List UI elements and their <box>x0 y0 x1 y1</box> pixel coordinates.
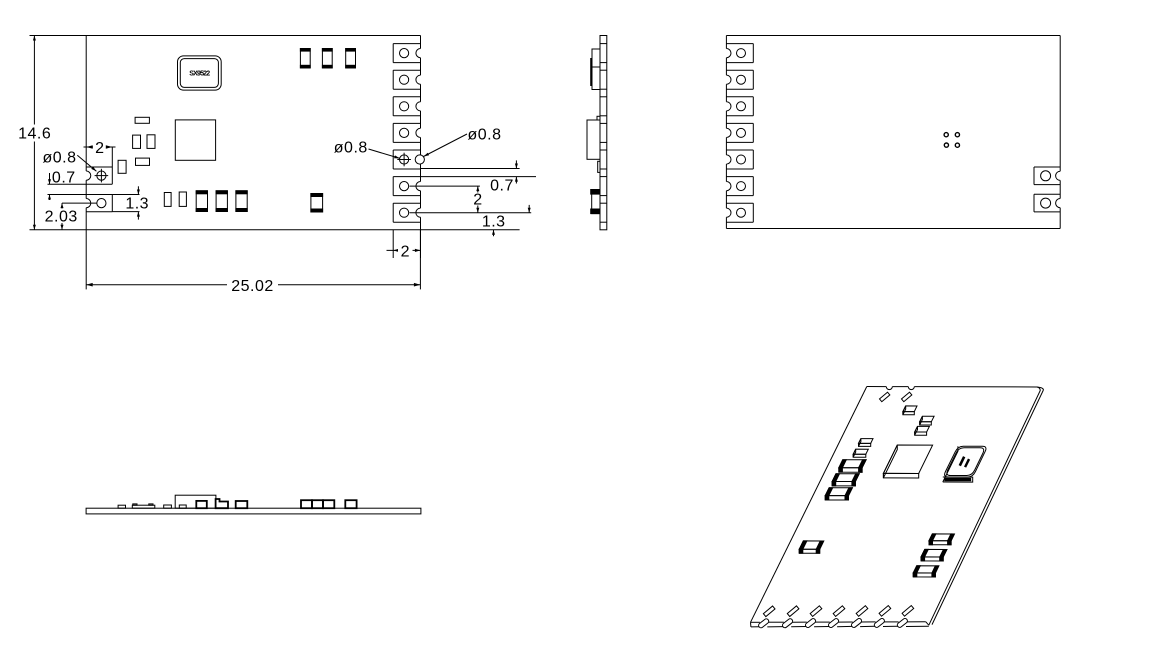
svg-text:1.3: 1.3 <box>125 195 149 212</box>
svg-text:ø0.8: ø0.8 <box>467 127 501 144</box>
svg-text:25.02: 25.02 <box>231 278 274 295</box>
svg-text:14.6: 14.6 <box>18 126 51 143</box>
svg-text:1.3: 1.3 <box>482 214 506 231</box>
svg-text:SX9522: SX9522 <box>189 70 210 77</box>
svg-text:0.7: 0.7 <box>490 178 514 195</box>
svg-text:2: 2 <box>95 140 104 157</box>
svg-text:ø0.8: ø0.8 <box>42 150 76 167</box>
svg-text:2: 2 <box>401 243 410 260</box>
svg-text:2: 2 <box>473 191 482 208</box>
svg-text:2.03: 2.03 <box>45 208 78 225</box>
svg-text:0.7: 0.7 <box>52 169 76 186</box>
svg-text:ø0.8: ø0.8 <box>334 140 368 157</box>
